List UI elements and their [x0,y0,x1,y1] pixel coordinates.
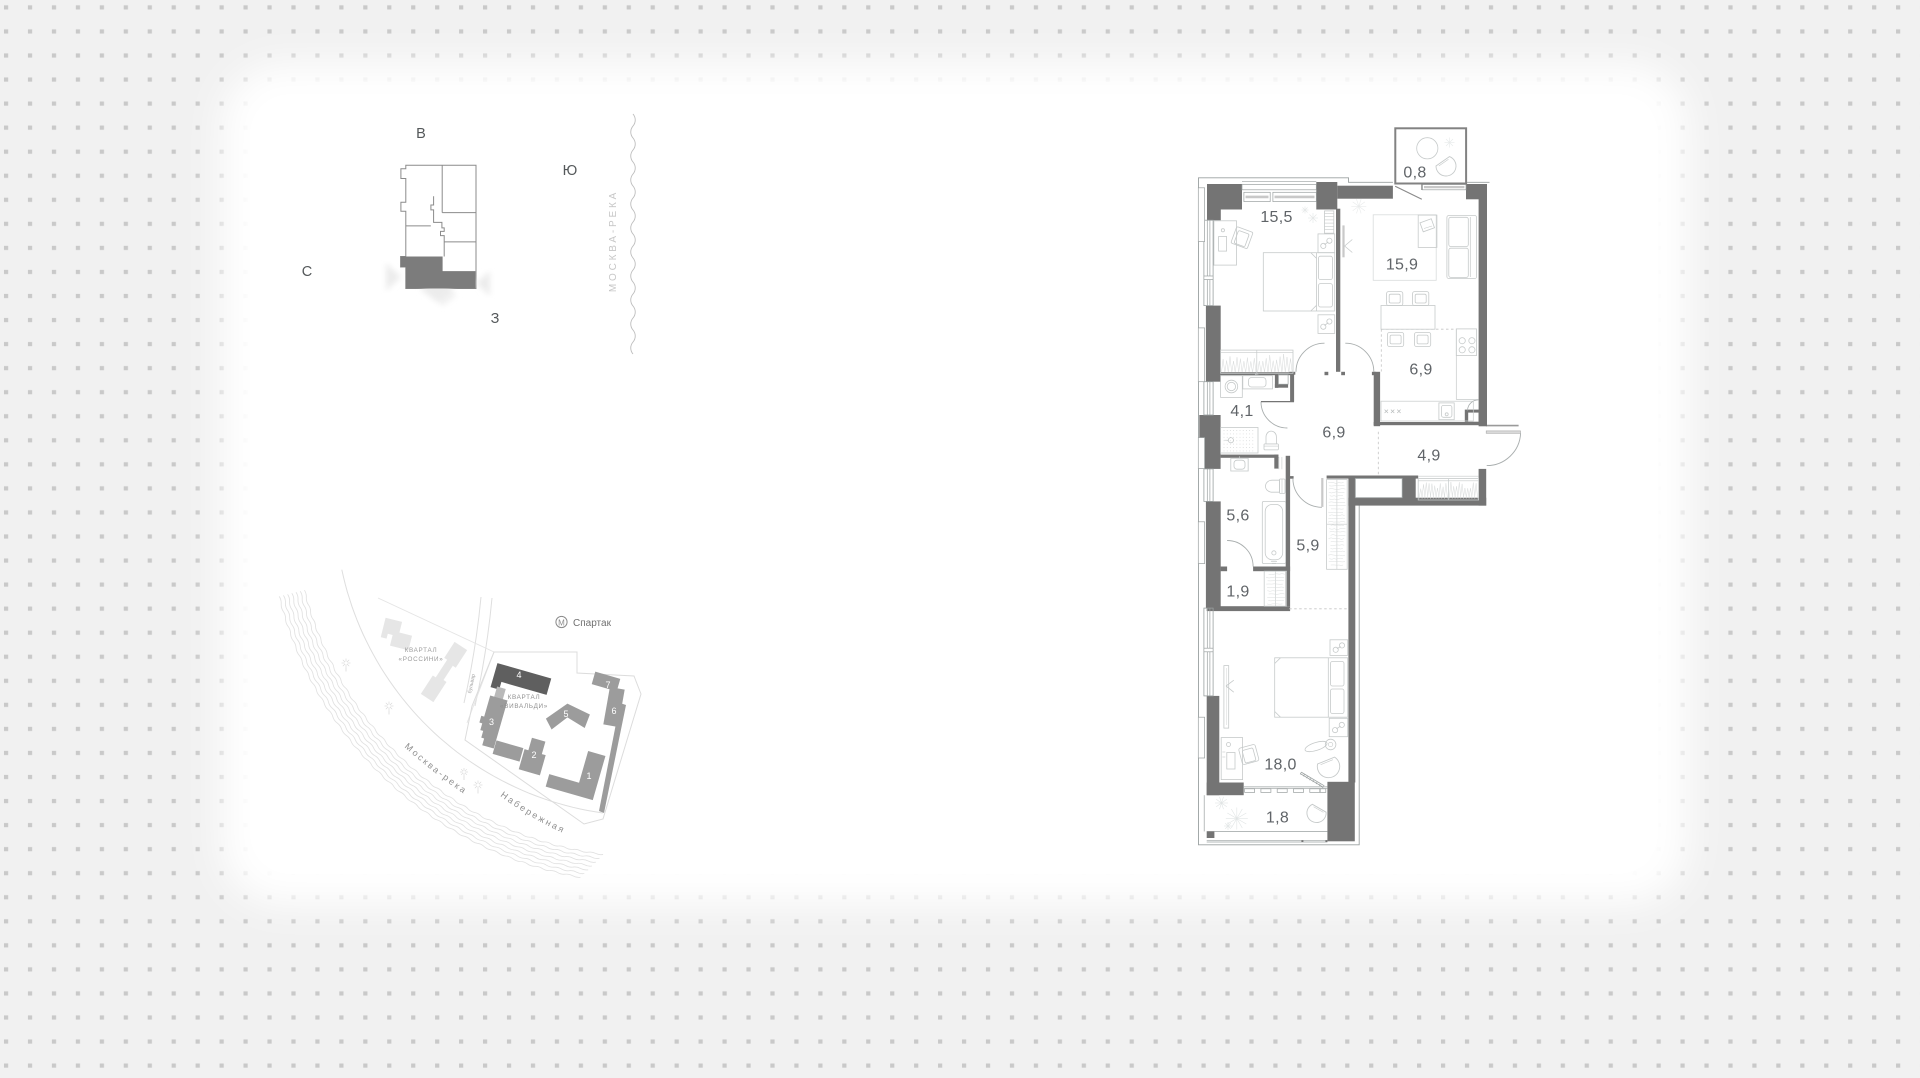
svg-text:З: З [491,311,500,327]
svg-text:М: М [558,618,565,627]
svg-text:4,1: 4,1 [1230,403,1253,420]
svg-text:«РОССИНИ»: «РОССИНИ» [399,656,444,663]
svg-text:6,9: 6,9 [1322,425,1345,442]
svg-text:15,5: 15,5 [1260,209,1292,226]
svg-text:6,9: 6,9 [1409,362,1432,379]
svg-text:7: 7 [605,680,610,690]
svg-text:3: 3 [489,717,494,727]
svg-text:1,8: 1,8 [1266,810,1289,827]
svg-text:Спартак: Спартак [573,618,612,629]
svg-text:0,8: 0,8 [1403,165,1426,182]
svg-text:6: 6 [611,706,616,716]
svg-text:1: 1 [586,771,591,781]
svg-text:4,9: 4,9 [1417,448,1440,465]
svg-text:«ВИВАЛЬДИ»: «ВИВАЛЬДИ» [500,703,548,710]
svg-text:5,6: 5,6 [1226,508,1249,525]
svg-text:1,9: 1,9 [1226,584,1249,601]
svg-text:С: С [302,264,312,280]
svg-text:5,9: 5,9 [1296,538,1319,555]
svg-text:5: 5 [563,709,568,719]
svg-text:КВАРТАЛ: КВАРТАЛ [405,647,438,654]
svg-text:4: 4 [516,670,521,680]
svg-text:В: В [416,126,426,142]
svg-text:2: 2 [531,750,536,760]
svg-text:18,0: 18,0 [1264,757,1296,774]
svg-text:МОСКВА-РЕКА: МОСКВА-РЕКА [608,190,619,292]
svg-text:15,9: 15,9 [1386,257,1418,274]
svg-text:КВАРТАЛ: КВАРТАЛ [508,694,541,701]
svg-text:Ю: Ю [563,163,578,179]
